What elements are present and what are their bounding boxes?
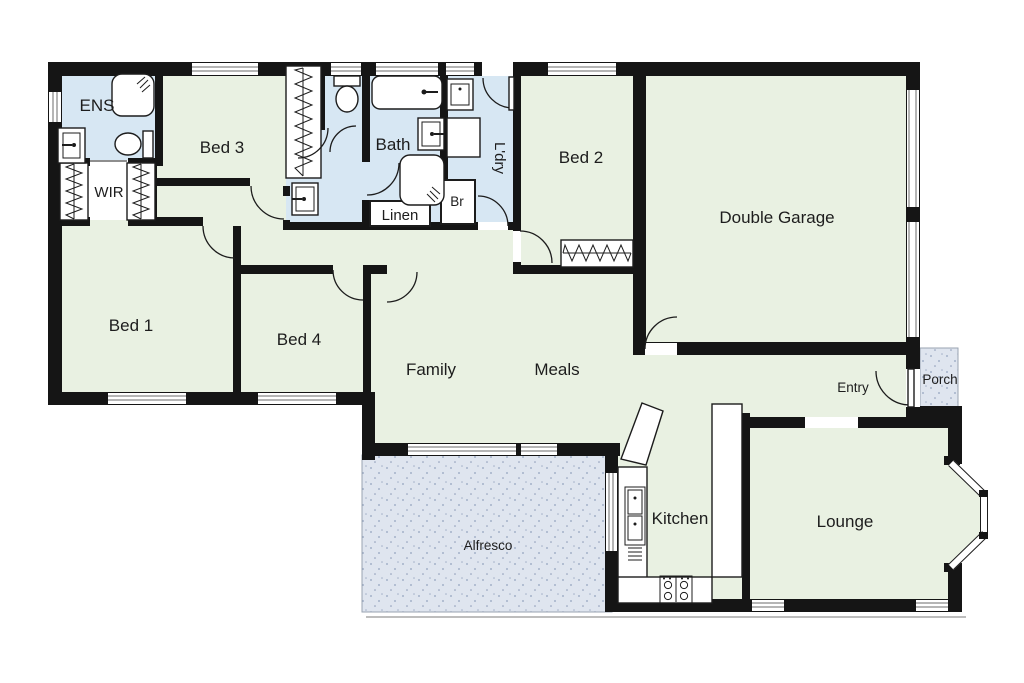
- laundry-exterior-door-leaf: [509, 77, 514, 110]
- room-label-bed1: Bed 1: [109, 316, 153, 335]
- bed2-robe-icon: [561, 240, 633, 267]
- room-label-ens: ENS: [80, 96, 115, 115]
- washing-machine-space: [447, 118, 480, 157]
- floor-plan-canvas: ENS WIR Bed 3 Bath L'dry Br Linen Bed 2 …: [0, 0, 1024, 683]
- bath-vanity-icon: [418, 118, 444, 150]
- alfresco-floor: [362, 455, 612, 612]
- room-label-kitchen: Kitchen: [652, 509, 709, 528]
- bath-shower-icon: [400, 155, 444, 205]
- powder-basin-icon: [292, 183, 318, 215]
- bathtub-icon: [372, 76, 442, 109]
- room-label-bath: Bath: [376, 135, 411, 154]
- floor-plan-svg: ENS WIR Bed 3 Bath L'dry Br Linen Bed 2 …: [0, 0, 1024, 683]
- room-label-bed4: Bed 4: [277, 330, 321, 349]
- room-label-lounge: Lounge: [817, 512, 874, 531]
- room-label-laundry: L'dry: [491, 142, 508, 175]
- bed3-robe-icon: [286, 66, 321, 178]
- room-label-linen: Linen: [382, 207, 419, 224]
- room-label-garage: Double Garage: [719, 208, 834, 227]
- room-label-wir: WIR: [94, 184, 123, 201]
- room-label-alfresco: Alfresco: [464, 538, 513, 553]
- front-door-leaf: [908, 369, 914, 407]
- ens-vanity-icon: [58, 128, 85, 163]
- room-label-broom: Br: [450, 194, 464, 209]
- wir-rail-right-icon: [127, 163, 155, 220]
- ens-shower-icon: [112, 74, 154, 116]
- wir-rail-left-icon: [60, 163, 88, 220]
- room-label-porch: Porch: [922, 372, 957, 387]
- room-label-family: Family: [406, 360, 457, 379]
- room-label-meals: Meals: [534, 360, 579, 379]
- room-label-entry: Entry: [837, 380, 869, 395]
- room-label-bed2: Bed 2: [559, 148, 603, 167]
- room-label-bed3: Bed 3: [200, 138, 244, 157]
- wc-toilet-icon: [334, 76, 360, 112]
- laundry-trough-icon: [447, 79, 473, 110]
